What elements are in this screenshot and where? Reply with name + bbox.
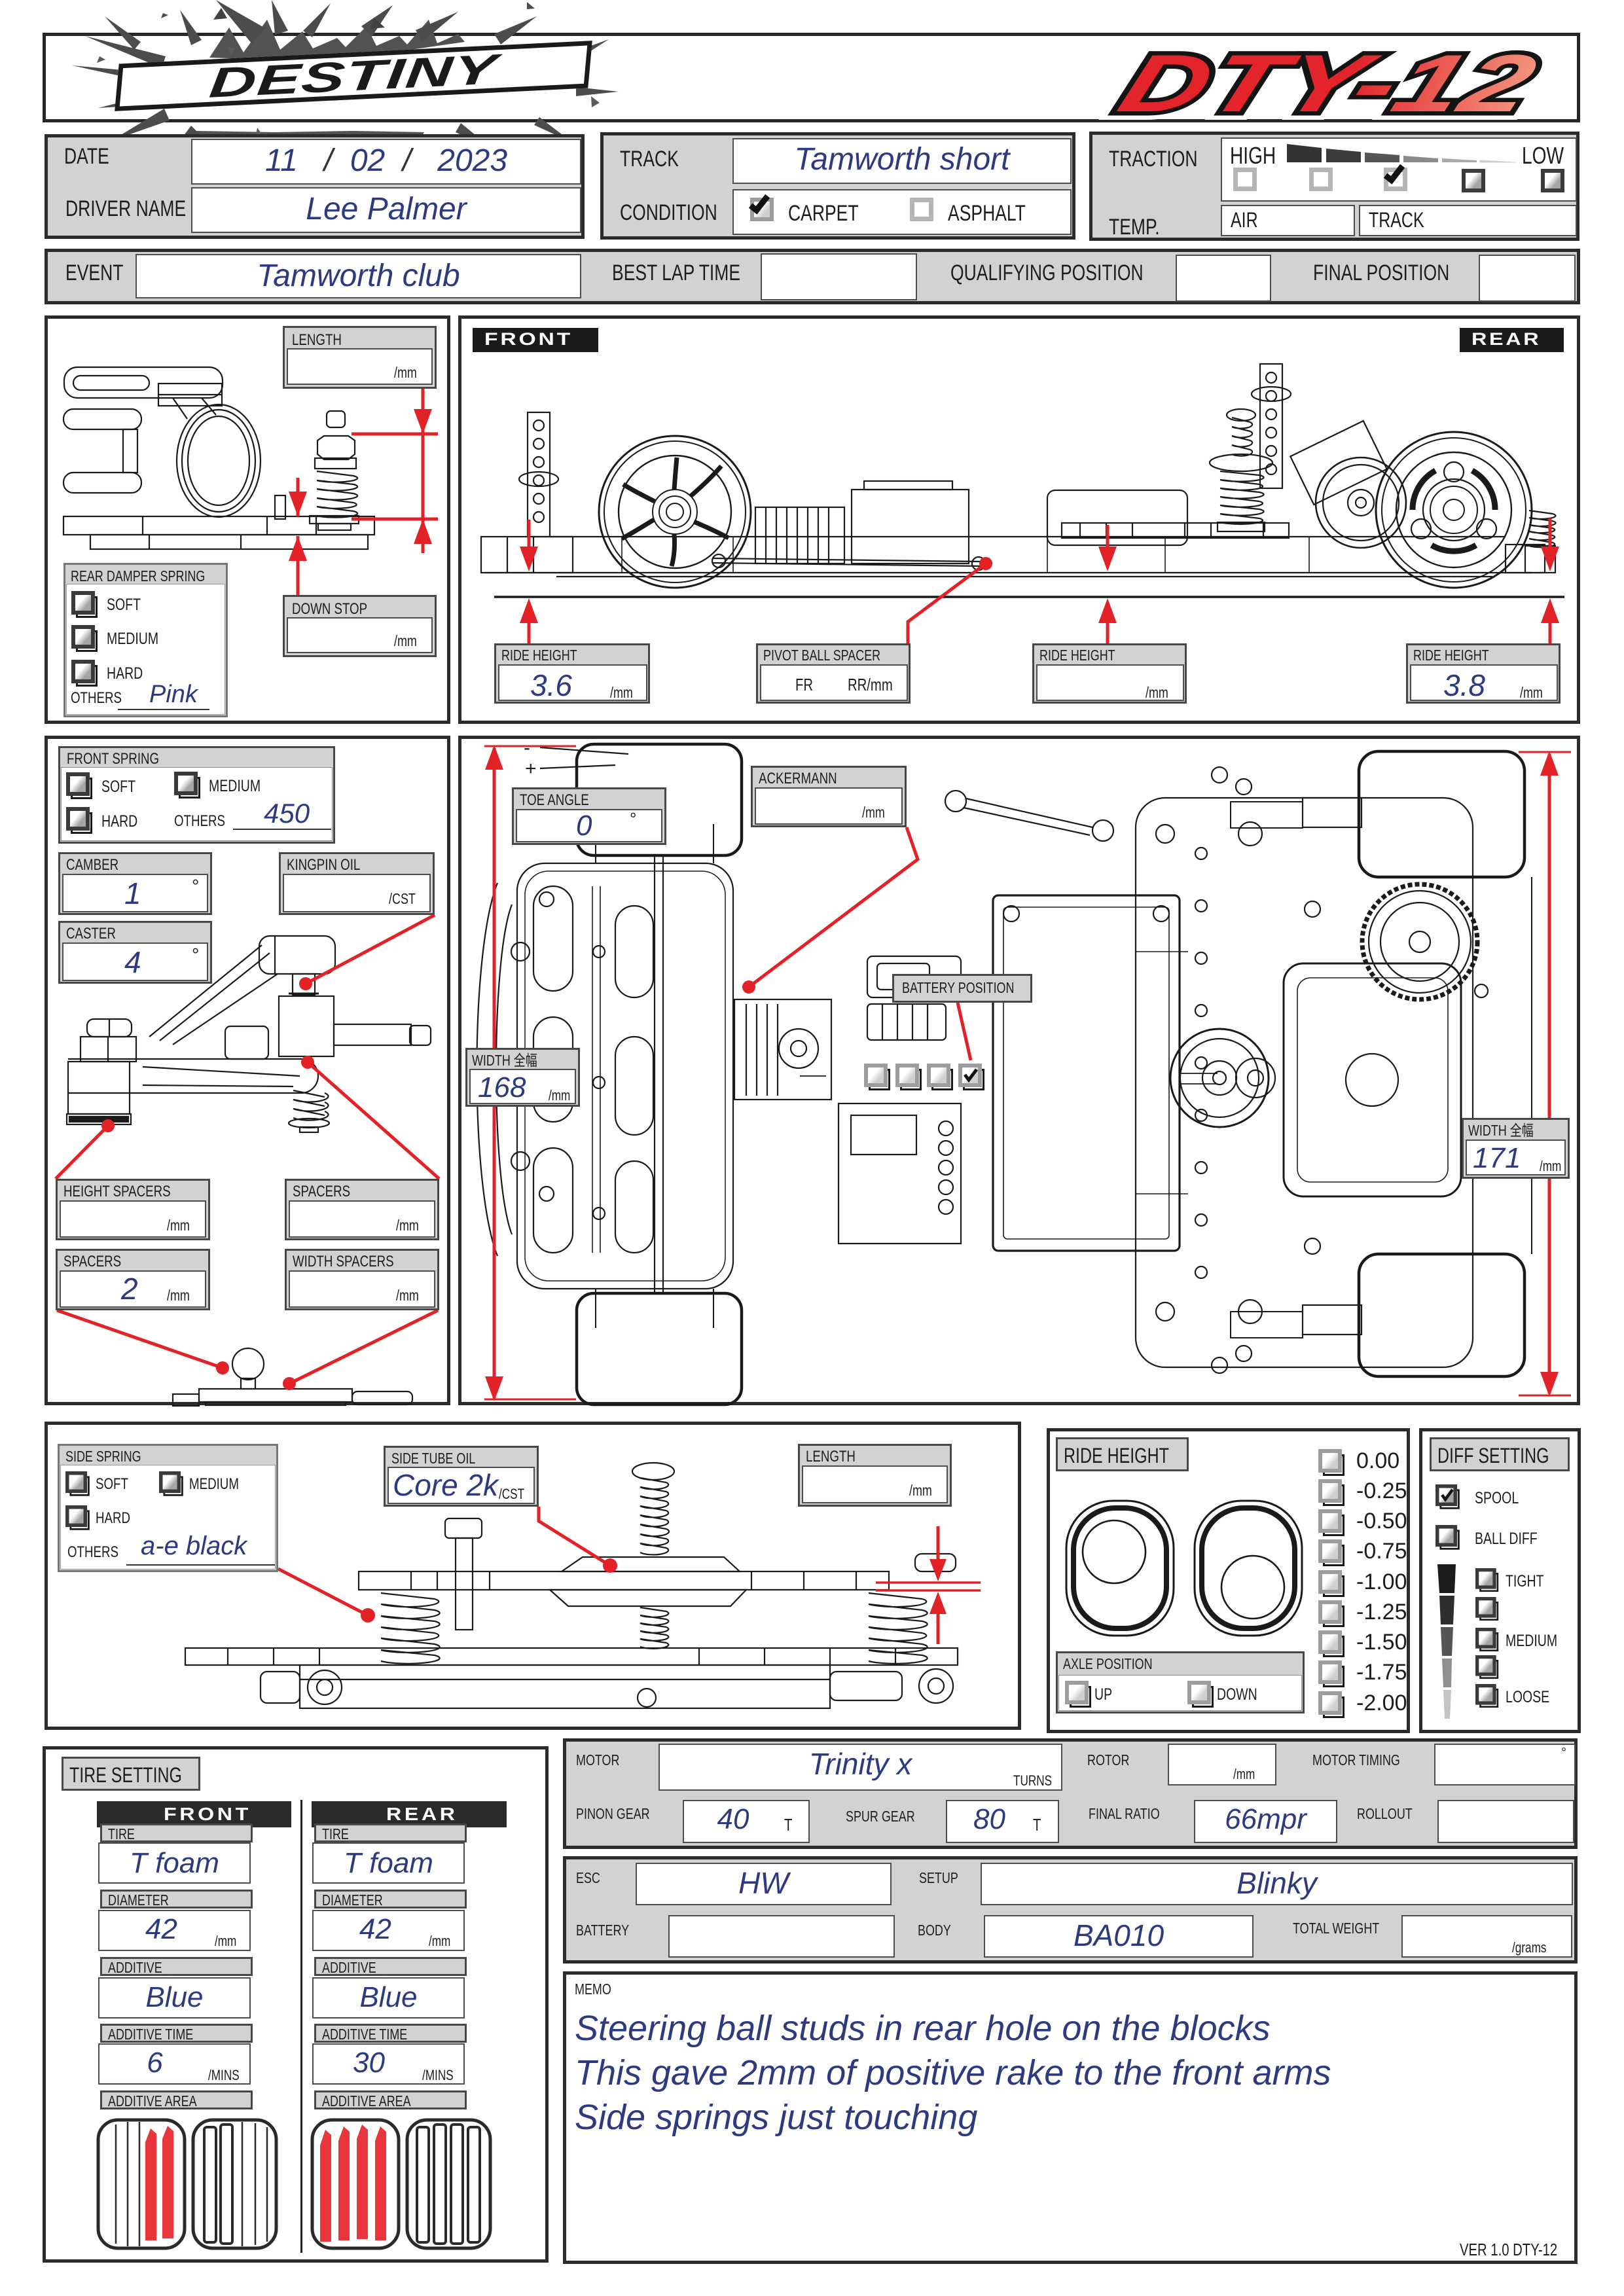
svg-text:DTY-12: DTY-12 <box>1108 38 1549 128</box>
